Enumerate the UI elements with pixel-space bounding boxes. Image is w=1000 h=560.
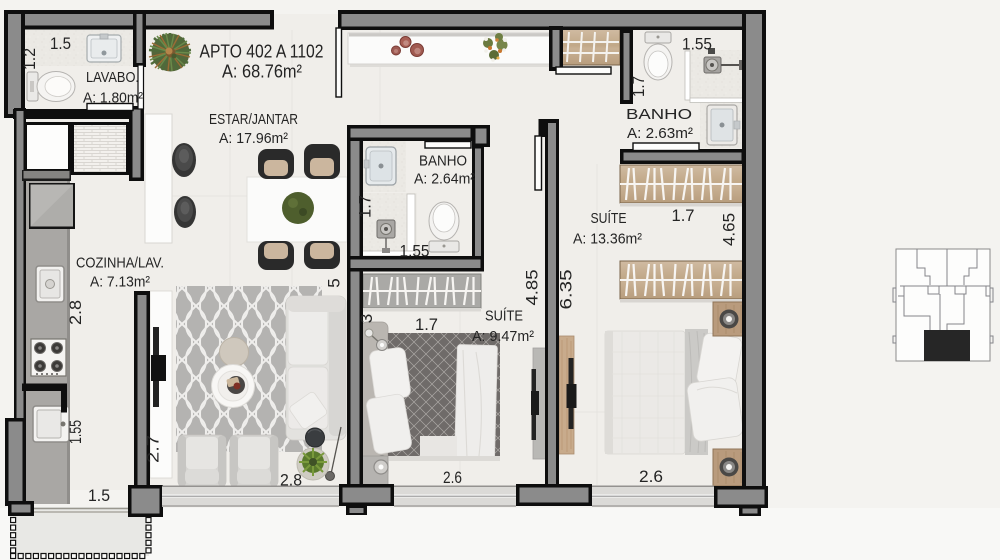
svg-text:A: 2.64m²: A: 2.64m² xyxy=(414,171,475,188)
svg-text:2.8: 2.8 xyxy=(66,300,85,325)
svg-text:1.7: 1.7 xyxy=(415,315,438,334)
svg-text:1.2: 1.2 xyxy=(20,48,39,70)
svg-text:A: 1.80m²: A: 1.80m² xyxy=(83,90,143,107)
svg-text:A: 7.13m²: A: 7.13m² xyxy=(90,274,150,291)
svg-text:1.7: 1.7 xyxy=(629,76,648,97)
svg-text:SUÍTE: SUÍTE xyxy=(485,308,523,325)
svg-text:APTO 402 A 1102: APTO 402 A 1102 xyxy=(200,41,324,62)
svg-text:BANHO: BANHO xyxy=(626,106,692,123)
svg-text:4.85: 4.85 xyxy=(523,270,542,306)
svg-text:1.7: 1.7 xyxy=(672,206,695,225)
svg-text:A: 9.47m²: A: 9.47m² xyxy=(472,328,534,345)
svg-text:2.8: 2.8 xyxy=(280,471,302,490)
svg-text:A: 13.36m²: A: 13.36m² xyxy=(573,231,642,248)
svg-text:A: 2.63m²: A: 2.63m² xyxy=(627,125,693,142)
svg-text:6.35: 6.35 xyxy=(557,270,576,310)
svg-text:1.5: 1.5 xyxy=(50,34,71,53)
svg-text:1.55: 1.55 xyxy=(682,35,712,54)
svg-text:2.7: 2.7 xyxy=(144,435,163,463)
svg-text:1.55: 1.55 xyxy=(400,242,430,261)
svg-text:1.55: 1.55 xyxy=(66,420,85,444)
svg-text:SUÍTE: SUÍTE xyxy=(591,210,627,227)
svg-text:4.65: 4.65 xyxy=(720,213,739,246)
svg-text:LAVABO.: LAVABO. xyxy=(86,69,139,86)
svg-text:COZINHA/LAV.: COZINHA/LAV. xyxy=(76,255,164,272)
svg-text:ESTAR/JANTAR: ESTAR/JANTAR xyxy=(209,111,298,128)
svg-text:1.5: 1.5 xyxy=(88,486,110,505)
svg-text:3: 3 xyxy=(357,314,376,323)
svg-text:A: 17.96m²: A: 17.96m² xyxy=(219,130,288,147)
svg-text:A: 68.76m²: A: 68.76m² xyxy=(222,61,302,82)
svg-text:2.6: 2.6 xyxy=(443,468,462,487)
svg-text:BANHO: BANHO xyxy=(419,153,467,170)
svg-text:1.7: 1.7 xyxy=(356,195,375,218)
svg-text:5: 5 xyxy=(325,278,344,287)
svg-text:2.6: 2.6 xyxy=(639,467,663,486)
